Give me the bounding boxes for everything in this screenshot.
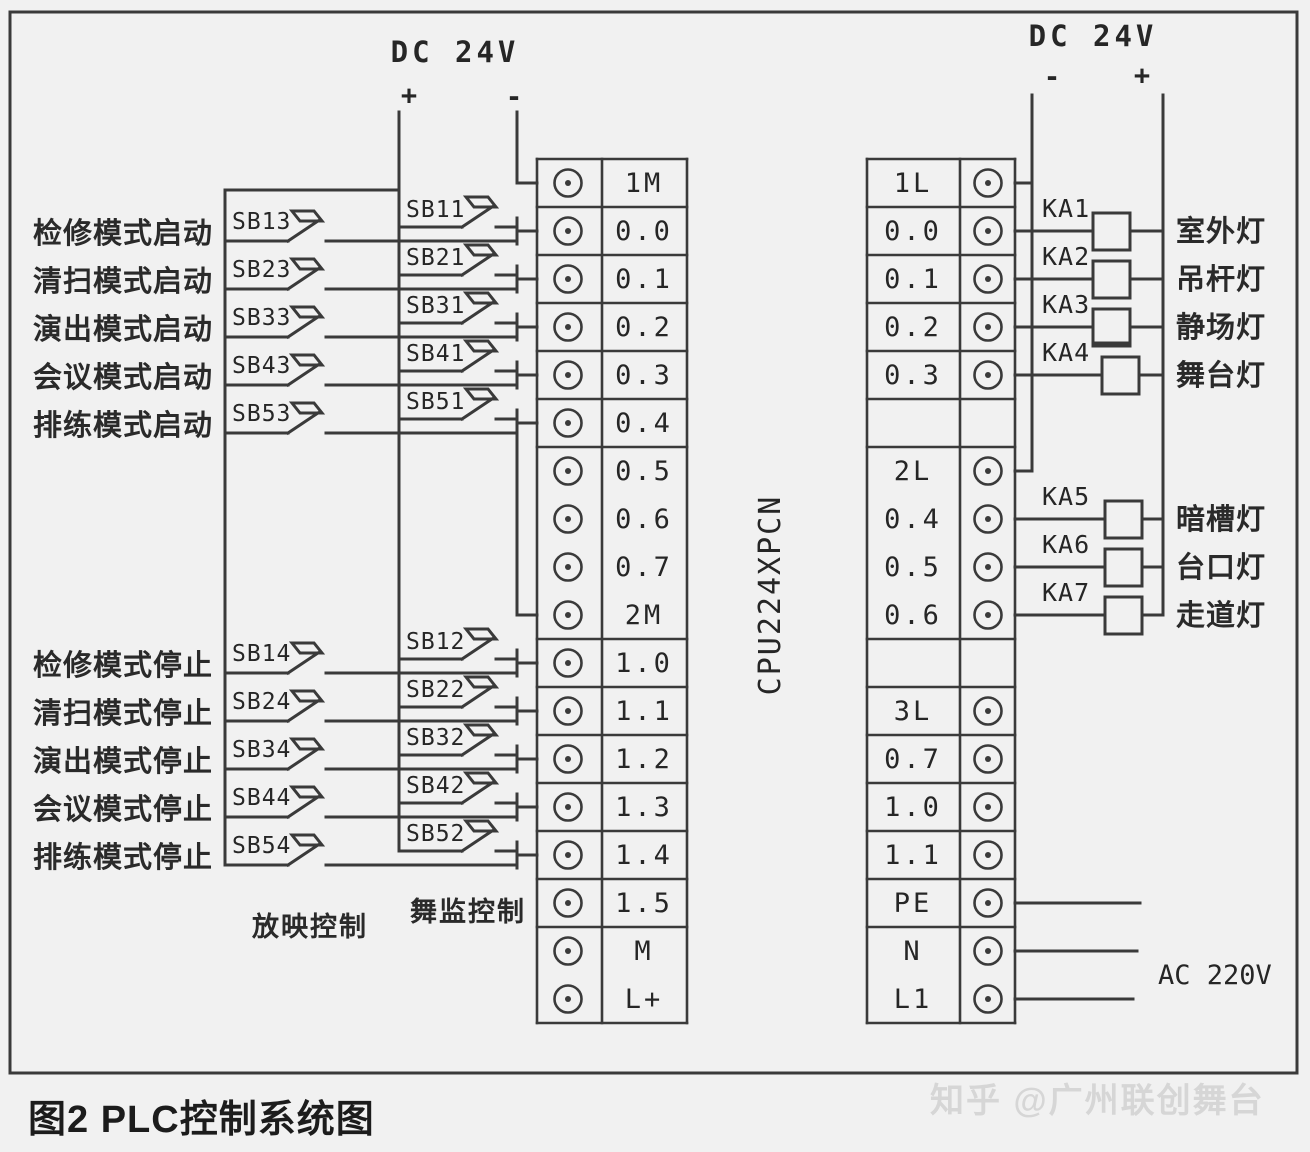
pushbutton-label: SB31: [406, 293, 465, 319]
pushbutton-label: SB23: [232, 257, 291, 283]
relay-label: KA1: [1042, 194, 1090, 223]
terminal-dot-icon: [565, 180, 571, 186]
pushbutton-inner-actuator: [462, 639, 492, 659]
ac220v-label: AC 220V: [1158, 960, 1272, 991]
pushbutton-inner-actuator: [462, 399, 492, 419]
terminal-dot-icon: [985, 612, 991, 618]
terminal-dot-icon: [985, 996, 991, 1002]
terminal-dot-icon: [565, 756, 571, 762]
relay-label: KA2: [1042, 242, 1090, 271]
pushbutton-label: SB42: [406, 773, 465, 799]
pushbutton-outer-flag-icon: [292, 787, 322, 797]
relay-coil-box: [1105, 501, 1142, 538]
pushbutton-inner-flag-icon: [466, 245, 496, 255]
relay-label: KA3: [1042, 290, 1090, 319]
pushbutton-outer-actuator: [288, 317, 318, 337]
watermark: 知乎 @广州联创舞台: [930, 1082, 1265, 1120]
pushbutton-label: SB34: [232, 737, 291, 763]
terminal-dot-icon: [985, 324, 991, 330]
terminal-dot-icon: [985, 228, 991, 234]
terminal-dot-icon: [985, 900, 991, 906]
dc-plus-label: +: [1134, 60, 1150, 91]
pushbutton-label: SB14: [232, 641, 291, 667]
terminal-dot-icon: [985, 756, 991, 762]
lamp-label: 舞台灯: [1176, 358, 1266, 392]
output-terminal-label: 2L: [894, 456, 933, 487]
output-terminal-label: N: [903, 936, 922, 967]
pushbutton-inner-flag-icon: [466, 389, 496, 399]
lamp-label: 静场灯: [1176, 311, 1266, 344]
figure-caption: 图2 PLC控制系统图: [28, 1099, 375, 1141]
input-terminal-label: 0.6: [615, 504, 673, 535]
pushbutton-label: SB44: [232, 785, 291, 811]
relay-coil-box: [1105, 549, 1142, 586]
mode-label: 演出模式启动: [33, 313, 213, 346]
pushbutton-outer-actuator: [288, 221, 318, 241]
input-terminal-label: 1.3: [615, 792, 673, 823]
terminal-dot-icon: [985, 180, 991, 186]
input-terminal-label: 2M: [625, 600, 664, 631]
pushbutton-outer-flag-icon: [292, 355, 322, 365]
pushbutton-label: SB21: [406, 245, 465, 271]
pushbutton-inner-actuator: [462, 303, 492, 323]
pushbutton-inner-flag-icon: [466, 629, 496, 639]
stage-manager-control-caption: 舞监控制: [410, 897, 526, 927]
output-terminal-label: 3L: [894, 696, 933, 727]
pushbutton-outer-flag-icon: [292, 643, 322, 653]
terminal-dot-icon: [985, 372, 991, 378]
pushbutton-label: SB52: [406, 821, 465, 847]
terminal-dot-icon: [565, 852, 571, 858]
relay-coil-box: [1105, 597, 1142, 634]
pushbutton-label: SB32: [406, 725, 465, 751]
terminal-dot-icon: [565, 228, 571, 234]
mode-label: 检修模式停止: [33, 648, 213, 682]
input-terminal-label: 0.3: [615, 360, 673, 391]
pushbutton-inner-actuator: [462, 735, 492, 755]
input-terminal-label: 0.0: [615, 216, 673, 247]
mode-label: 会议模式启动: [33, 361, 213, 394]
mode-label: 清扫模式停止: [33, 696, 213, 730]
dc24v-right-label: DC 24V: [1029, 19, 1158, 53]
terminal-dot-icon: [565, 708, 571, 714]
plc-wiring-diagram: 1M1L0.00.00.10.10.20.20.30.30.40.52L0.60…: [0, 0, 1310, 1152]
pushbutton-inner-flag-icon: [466, 773, 496, 783]
output-terminal-label: 0.4: [884, 504, 942, 535]
pushbutton-outer-actuator: [288, 365, 318, 385]
mode-label: 会议模式停止: [33, 792, 213, 826]
input-terminal-label: 0.1: [615, 264, 673, 295]
pushbutton-inner-actuator: [462, 783, 492, 803]
output-terminal-label: 0.7: [884, 744, 942, 775]
terminal-dot-icon: [985, 852, 991, 858]
terminal-dot-icon: [985, 516, 991, 522]
pushbutton-inner-flag-icon: [466, 197, 496, 207]
dc-plus-label: +: [401, 80, 417, 111]
pushbutton-inner-flag-icon: [466, 725, 496, 735]
relay-label: KA5: [1042, 482, 1090, 511]
lamp-label: 吊杆灯: [1176, 263, 1266, 296]
dc24v-left-label: DC 24V: [391, 35, 520, 69]
input-terminal-label: 1.5: [615, 888, 673, 919]
terminal-dot-icon: [565, 564, 571, 570]
input-terminal-label: 0.4: [615, 408, 673, 439]
terminal-dot-icon: [985, 708, 991, 714]
pushbutton-inner-flag-icon: [466, 821, 496, 831]
output-terminal-label: 1.0: [884, 792, 942, 823]
terminal-dot-icon: [985, 564, 991, 570]
pushbutton-inner-actuator: [462, 687, 492, 707]
mode-label: 检修模式启动: [33, 216, 213, 250]
input-terminal-label: 1.1: [615, 696, 673, 727]
output-terminal-label: 1.1: [884, 840, 942, 871]
terminal-dot-icon: [565, 468, 571, 474]
relay-label: KA7: [1042, 578, 1090, 607]
terminal-dot-icon: [565, 276, 571, 282]
terminal-dot-icon: [565, 804, 571, 810]
pushbutton-outer-actuator: [288, 845, 318, 865]
relay-label: KA6: [1042, 530, 1090, 559]
pushbutton-outer-actuator: [288, 701, 318, 721]
pushbutton-outer-flag-icon: [292, 691, 322, 701]
input-terminal-label: 0.7: [615, 552, 673, 583]
pushbutton-label: SB12: [406, 629, 465, 655]
terminal-dot-icon: [985, 804, 991, 810]
terminal-dot-icon: [565, 660, 571, 666]
lamp-label: 走道灯: [1176, 599, 1266, 632]
pushbutton-inner-flag-icon: [466, 677, 496, 687]
relay-coil-box: [1093, 213, 1130, 250]
terminal-dot-icon: [565, 612, 571, 618]
output-terminal-label: 0.3: [884, 360, 942, 391]
terminal-dot-icon: [565, 516, 571, 522]
pushbutton-outer-flag-icon: [292, 739, 322, 749]
input-terminal-label: 0.2: [615, 312, 673, 343]
terminal-dot-icon: [565, 900, 571, 906]
pushbutton-inner-flag-icon: [466, 293, 496, 303]
pushbutton-label: SB24: [232, 689, 291, 715]
mode-label: 排练模式停止: [33, 840, 213, 874]
cpu-model-label: CPU224XPCN: [753, 495, 788, 696]
pushbutton-inner-actuator: [462, 351, 492, 371]
pushbutton-label: SB13: [232, 209, 291, 235]
dc-minus-label: -: [1044, 62, 1060, 93]
terminal-dot-icon: [565, 324, 571, 330]
pushbutton-outer-actuator: [288, 269, 318, 289]
terminal-dot-icon: [565, 948, 571, 954]
input-terminal-label: 1.2: [615, 744, 673, 775]
terminal-dot-icon: [985, 948, 991, 954]
lamp-label: 台口灯: [1176, 550, 1266, 584]
mode-label: 清扫模式启动: [33, 265, 213, 298]
lamp-label: 暗槽灯: [1176, 503, 1266, 536]
pushbutton-label: SB43: [232, 353, 291, 379]
relay-label: KA4: [1042, 338, 1090, 367]
terminal-dot-icon: [985, 276, 991, 282]
dc-minus-label: -: [506, 82, 522, 113]
output-terminal-label: 0.1: [884, 264, 942, 295]
pushbutton-inner-actuator: [462, 207, 492, 227]
pushbutton-outer-actuator: [288, 653, 318, 673]
pushbutton-outer-flag-icon: [292, 307, 322, 317]
projection-control-caption: 放映控制: [251, 911, 368, 942]
pushbutton-label: SB51: [406, 389, 465, 415]
relay-coil-box: [1093, 261, 1130, 298]
mode-label: 演出模式停止: [33, 744, 213, 778]
pushbutton-label: SB33: [232, 305, 291, 331]
pushbutton-outer-flag-icon: [292, 259, 322, 269]
terminal-dot-icon: [985, 468, 991, 474]
pushbutton-label: SB22: [406, 677, 465, 703]
pushbutton-label: SB53: [232, 401, 291, 427]
output-terminal-label: 0.6: [884, 600, 942, 631]
output-terminal-label: PE: [894, 888, 933, 919]
output-terminal-label: 0.5: [884, 552, 942, 583]
output-terminal-label: 0.0: [884, 216, 942, 247]
input-terminal-label: 1.0: [615, 648, 673, 679]
output-terminal-label: L1: [894, 984, 933, 1015]
pushbutton-outer-flag-icon: [292, 835, 322, 845]
pushbutton-outer-actuator: [288, 797, 318, 817]
input-terminal-label: 1.4: [615, 840, 673, 871]
output-terminal-label: 1L: [894, 168, 933, 199]
pushbutton-outer-flag-icon: [292, 211, 322, 221]
terminal-dot-icon: [565, 372, 571, 378]
pushbutton-label: SB54: [232, 833, 291, 859]
lamp-label: 室外灯: [1176, 214, 1266, 248]
output-terminal-label: 0.2: [884, 312, 942, 343]
pushbutton-outer-flag-icon: [292, 403, 322, 413]
terminal-dot-icon: [565, 996, 571, 1002]
input-terminal-label: 1M: [625, 168, 664, 199]
input-terminal-label: L+: [625, 984, 664, 1015]
terminal-dot-icon: [565, 420, 571, 426]
pushbutton-outer-actuator: [288, 413, 318, 433]
pushbutton-inner-actuator: [462, 831, 492, 851]
relay-coil-box: [1102, 357, 1139, 394]
pushbutton-inner-actuator: [462, 255, 492, 275]
pushbutton-label: SB11: [406, 197, 465, 223]
input-terminal-label: M: [634, 936, 653, 967]
input-terminal-label: 0.5: [615, 456, 673, 487]
mode-label: 排练模式启动: [33, 408, 213, 442]
pushbutton-label: SB41: [406, 341, 465, 367]
pushbutton-outer-actuator: [288, 749, 318, 769]
relay-coil-box: [1093, 309, 1130, 346]
pushbutton-inner-flag-icon: [466, 341, 496, 351]
